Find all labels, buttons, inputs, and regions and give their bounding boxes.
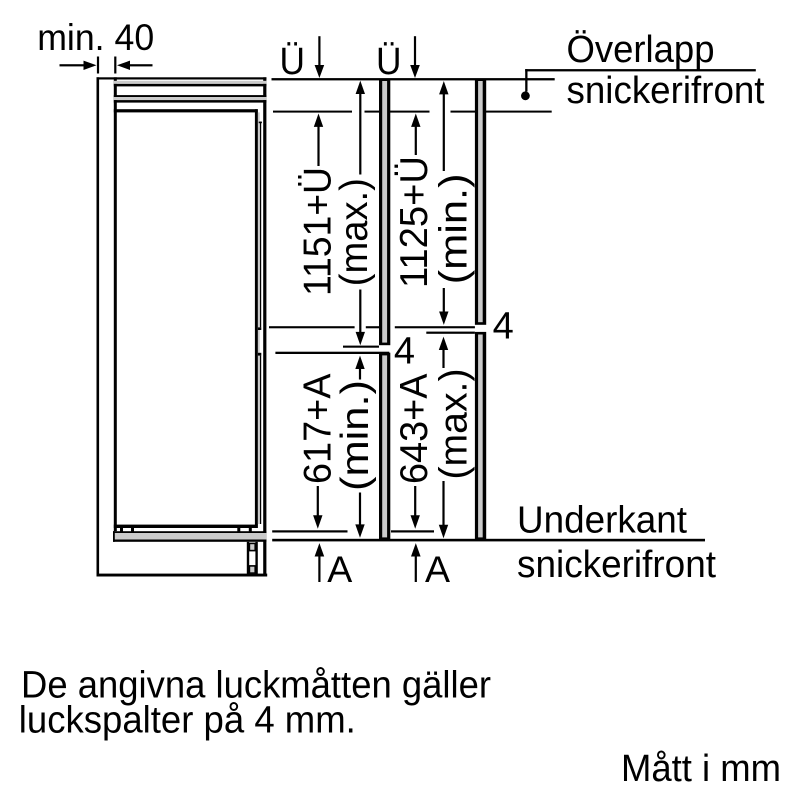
svg-text:min. 40: min. 40 (37, 17, 154, 58)
svg-text:A: A (327, 548, 352, 590)
svg-text:4: 4 (394, 330, 415, 372)
svg-text:Överlapp: Överlapp (567, 29, 715, 71)
svg-text:(max.): (max.) (333, 178, 376, 286)
svg-text:643+A: 643+A (393, 374, 436, 485)
svg-text:(min.): (min.) (433, 173, 476, 284)
svg-text:A: A (425, 548, 450, 590)
svg-text:Ü: Ü (376, 41, 402, 83)
svg-text:luckspalter på 4 mm.: luckspalter på 4 mm. (19, 699, 356, 741)
svg-text:(max.): (max.) (433, 369, 476, 480)
svg-text:4: 4 (493, 305, 514, 347)
svg-text:Underkant: Underkant (517, 500, 687, 542)
svg-text:snickerifront: snickerifront (517, 544, 716, 586)
svg-text:1125+Ü: 1125+Ü (393, 156, 436, 288)
svg-text:(min.): (min.) (334, 380, 377, 491)
svg-text:Ü: Ü (280, 41, 306, 83)
svg-text:snickerifront: snickerifront (567, 70, 765, 112)
svg-text:Mått i mm: Mått i mm (621, 748, 781, 790)
